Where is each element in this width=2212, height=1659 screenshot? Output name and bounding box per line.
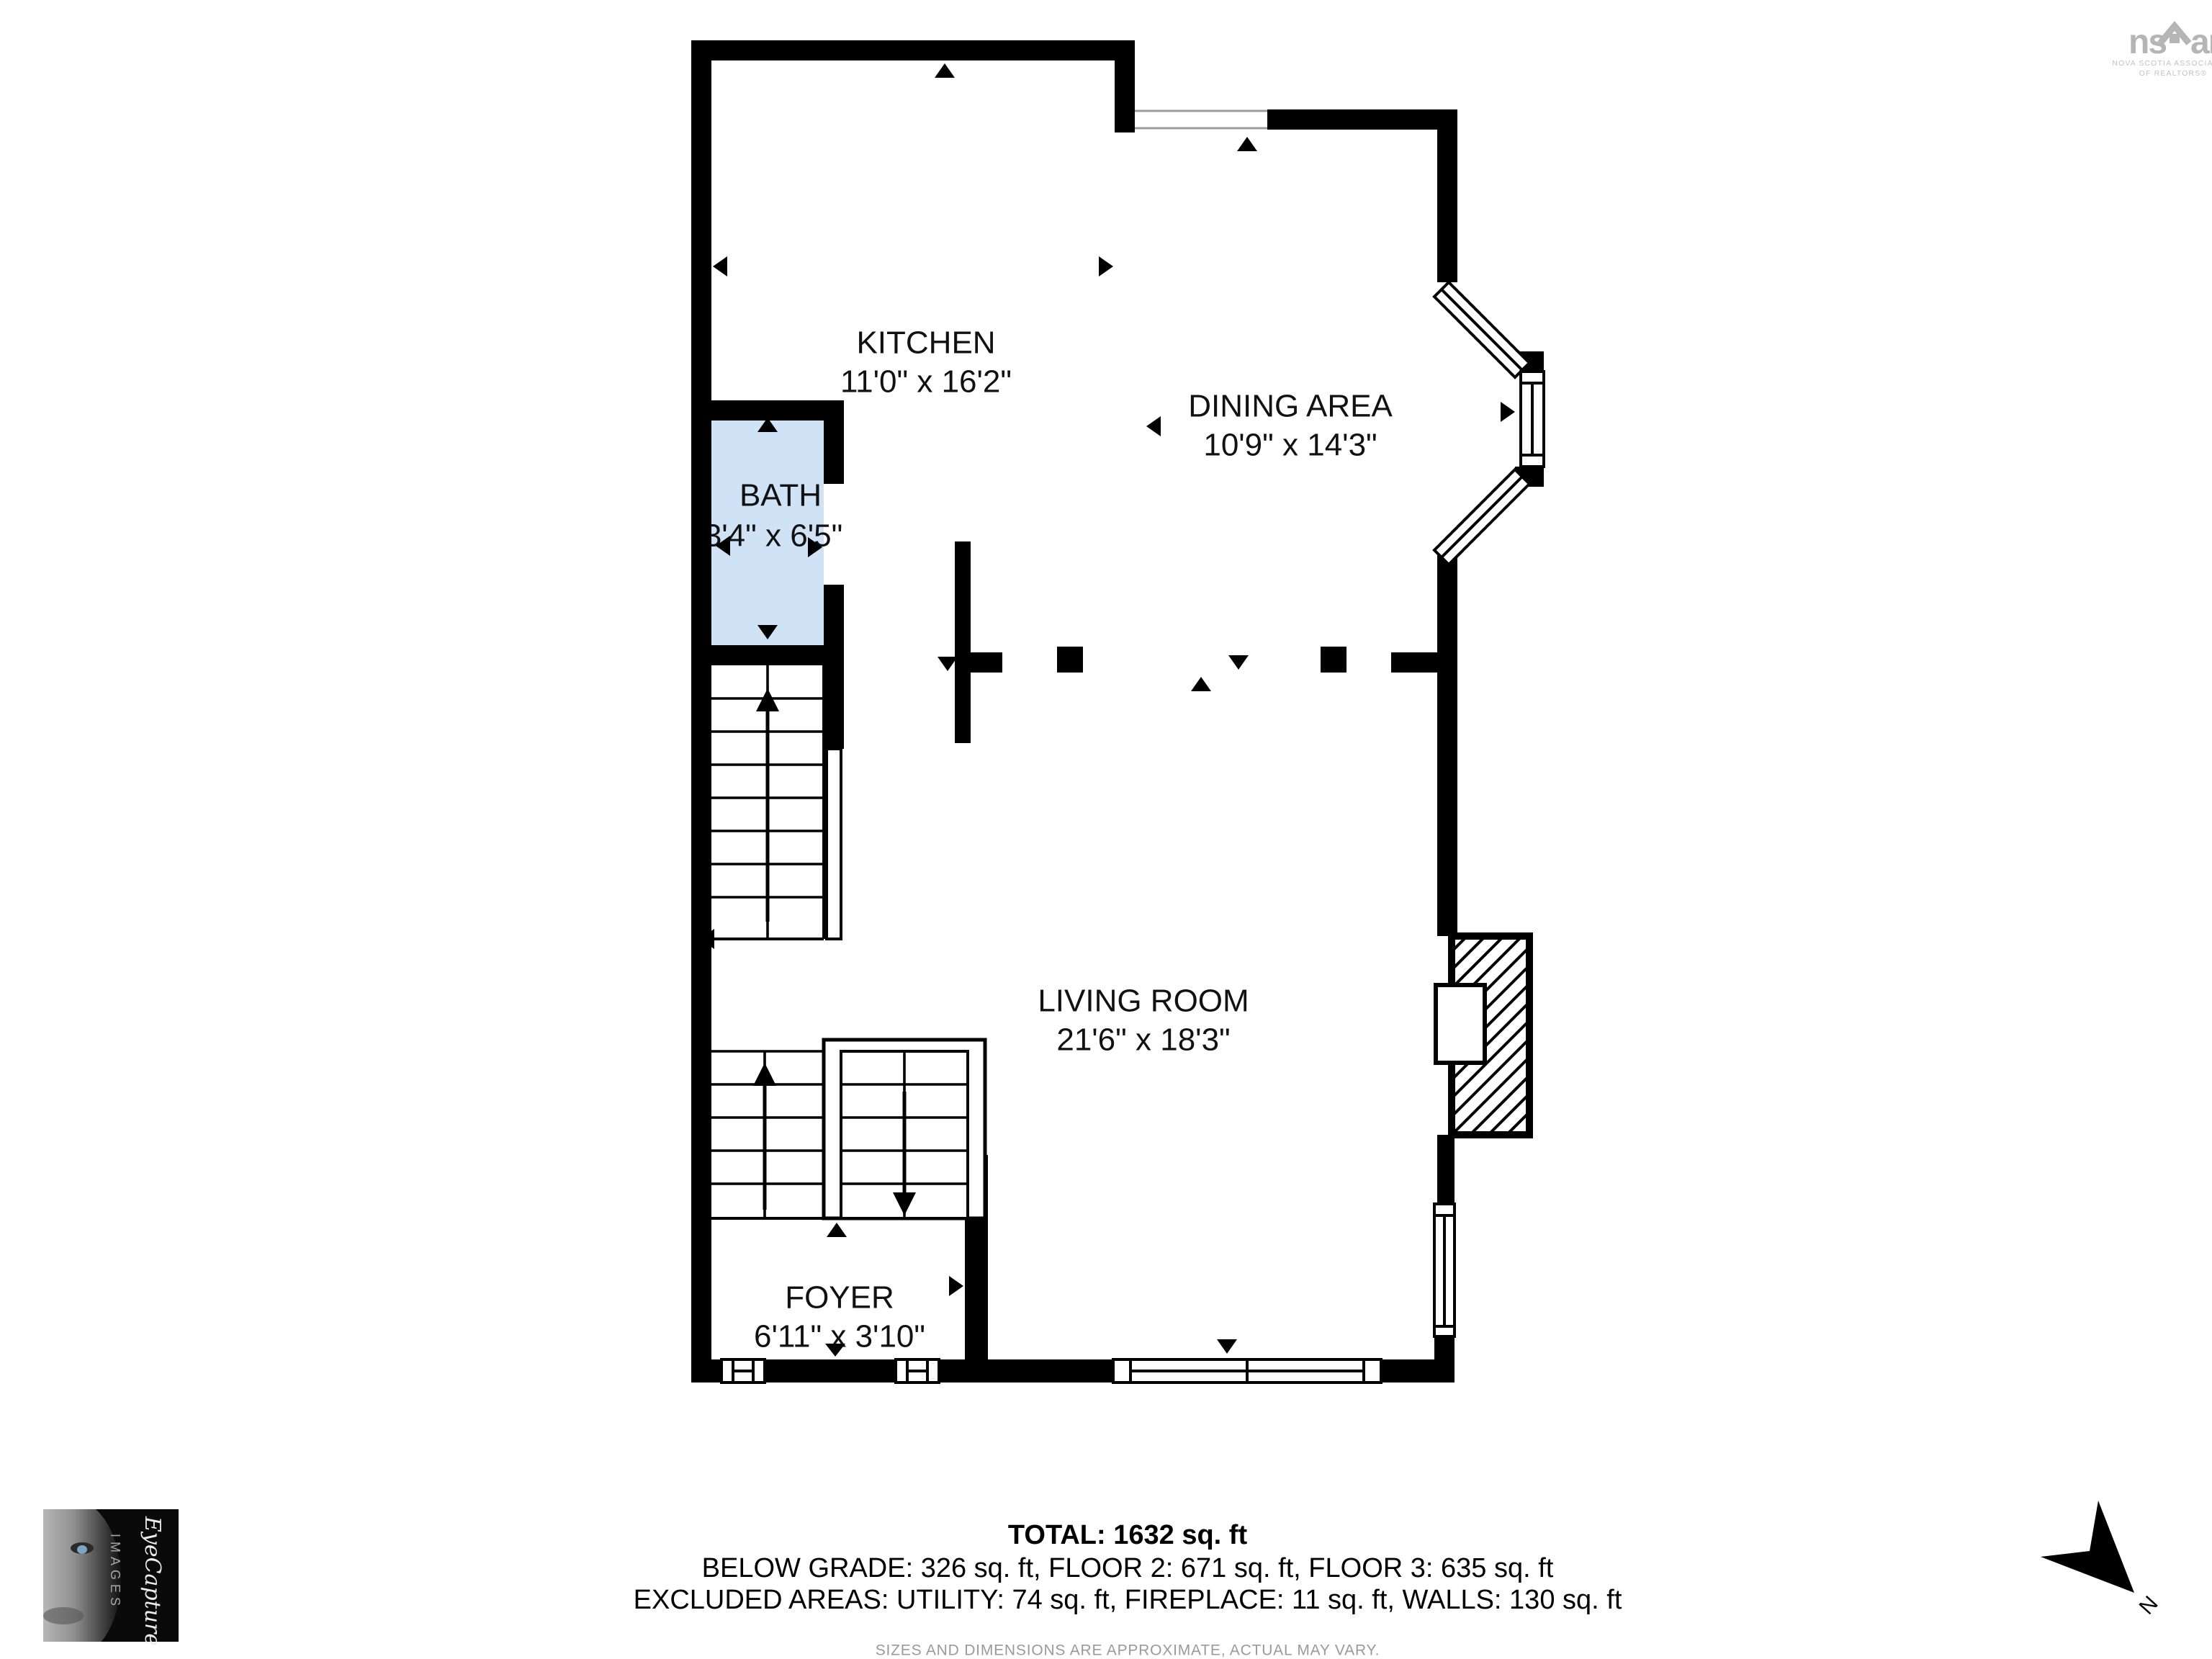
- bath-top-wall: [691, 400, 844, 421]
- floor-areas-text: BELOW GRADE: 326 sq. ft, FLOOR 2: 671 sq…: [702, 1553, 1554, 1583]
- right-window: [1434, 1204, 1455, 1336]
- floor-plan: 3'4" x 6'5": [691, 40, 1544, 1382]
- floor-plan-page: 3'4" x 6'5": [0, 0, 2212, 1659]
- nsar-caption-line1: NOVA SCOTIA ASSOCIATION: [2112, 60, 2212, 68]
- living-label: LIVING ROOM: [1038, 984, 1249, 1019]
- walls: [691, 40, 1544, 1382]
- right-wall-below-fireplace: [1437, 1135, 1455, 1204]
- stairs2-up-arrow-icon: [753, 1063, 776, 1086]
- foyer-window-right: [896, 1359, 939, 1382]
- compass: N: [2041, 1501, 2163, 1619]
- photographer-script-text: EyeCapture: [140, 1516, 165, 1646]
- fireplace: [1436, 936, 1529, 1135]
- dimension-arrows: [697, 63, 1515, 1357]
- top-opening: [1135, 111, 1267, 128]
- nsar-logo: ns ar NOVA SCOTIA ASSOCIATION OF REALTOR…: [2112, 23, 2212, 78]
- living-dims-label: 21'6" x 18'3": [1056, 1022, 1230, 1058]
- photographer-word-text: IMAGES: [108, 1534, 122, 1610]
- peninsula-stub: [971, 652, 1002, 673]
- dining-left-arrow-icon: [1146, 416, 1161, 436]
- photographer-face-image: [17, 1498, 121, 1659]
- left-wall: [691, 40, 711, 1382]
- disclaimer-text: SIZES AND DIMENSIONS ARE APPROXIMATE, AC…: [876, 1642, 1380, 1659]
- kitchen-right-arrow-icon: [1099, 256, 1113, 276]
- bath-right-wall-upper: [824, 400, 844, 484]
- excluded-areas-text: EXCLUDED AREAS: UTILITY: 74 sq. ft, FIRE…: [634, 1585, 1622, 1615]
- north-arrow-icon: [2041, 1501, 2134, 1593]
- summary-block: TOTAL: 1632 sq. ft BELOW GRADE: 326 sq. …: [634, 1520, 1622, 1659]
- dining-label: DINING AREA: [1188, 389, 1393, 424]
- bath-bottom-wall: [691, 645, 844, 665]
- stairs-lower: [711, 1040, 985, 1218]
- column-1: [1057, 647, 1083, 673]
- kitchen-left-arrow-icon: [713, 256, 727, 276]
- fireplace-firebox: [1436, 985, 1485, 1063]
- stair1-side-wall: [824, 665, 844, 749]
- column-2: [1321, 647, 1346, 673]
- stairs-upper: [711, 665, 841, 939]
- peninsula-wall: [955, 541, 971, 743]
- right-wall-upper: [1437, 130, 1457, 282]
- kitchen-dims-label: 11'0" x 16'2": [840, 364, 1012, 400]
- living-room-window: [1113, 1359, 1381, 1382]
- foyer-right-arrow-icon: [949, 1276, 963, 1296]
- kitchen-top-arrow-icon: [935, 63, 955, 78]
- kitchen-bottom-arrow-icon: [938, 657, 958, 671]
- top-wall: [691, 40, 1135, 60]
- dining-stub-wall: [1391, 652, 1457, 673]
- living-top-arrow-icon: [1191, 677, 1211, 691]
- foyer-label: FOYER: [785, 1280, 894, 1316]
- photographer-logo: EyeCapture IMAGES: [17, 1498, 179, 1659]
- step-wall: [1115, 40, 1135, 132]
- nsar-logo-right-text: ar: [2190, 23, 2212, 61]
- bath-label: BATH: [739, 478, 822, 513]
- foyer-top-arrow-icon: [827, 1223, 847, 1237]
- kitchen-label: KITCHEN: [856, 325, 995, 361]
- north-label: N: [2135, 1591, 2163, 1619]
- dining-bottom-arrow-icon: [1228, 655, 1249, 670]
- total-area-text: TOTAL: 1632 sq. ft: [1008, 1520, 1248, 1550]
- dining-top-arrow-icon: [1237, 137, 1257, 151]
- dining-top-wall: [1267, 109, 1457, 130]
- stair1-rail: [827, 749, 841, 939]
- dining-right-arrow-icon: [1501, 402, 1515, 422]
- bay-window: [1434, 282, 1544, 565]
- right-wall-mid: [1437, 550, 1457, 936]
- nsar-caption-line2: OF REALTORS®: [2139, 70, 2207, 78]
- living-bottom-arrow-icon: [1217, 1339, 1237, 1354]
- nsar-roof-square-icon: [2170, 34, 2180, 43]
- foyer-window-left: [721, 1359, 765, 1382]
- dining-dims-label: 10'9" x 14'3": [1203, 428, 1377, 463]
- stairs-up-arrow-icon: [756, 688, 779, 711]
